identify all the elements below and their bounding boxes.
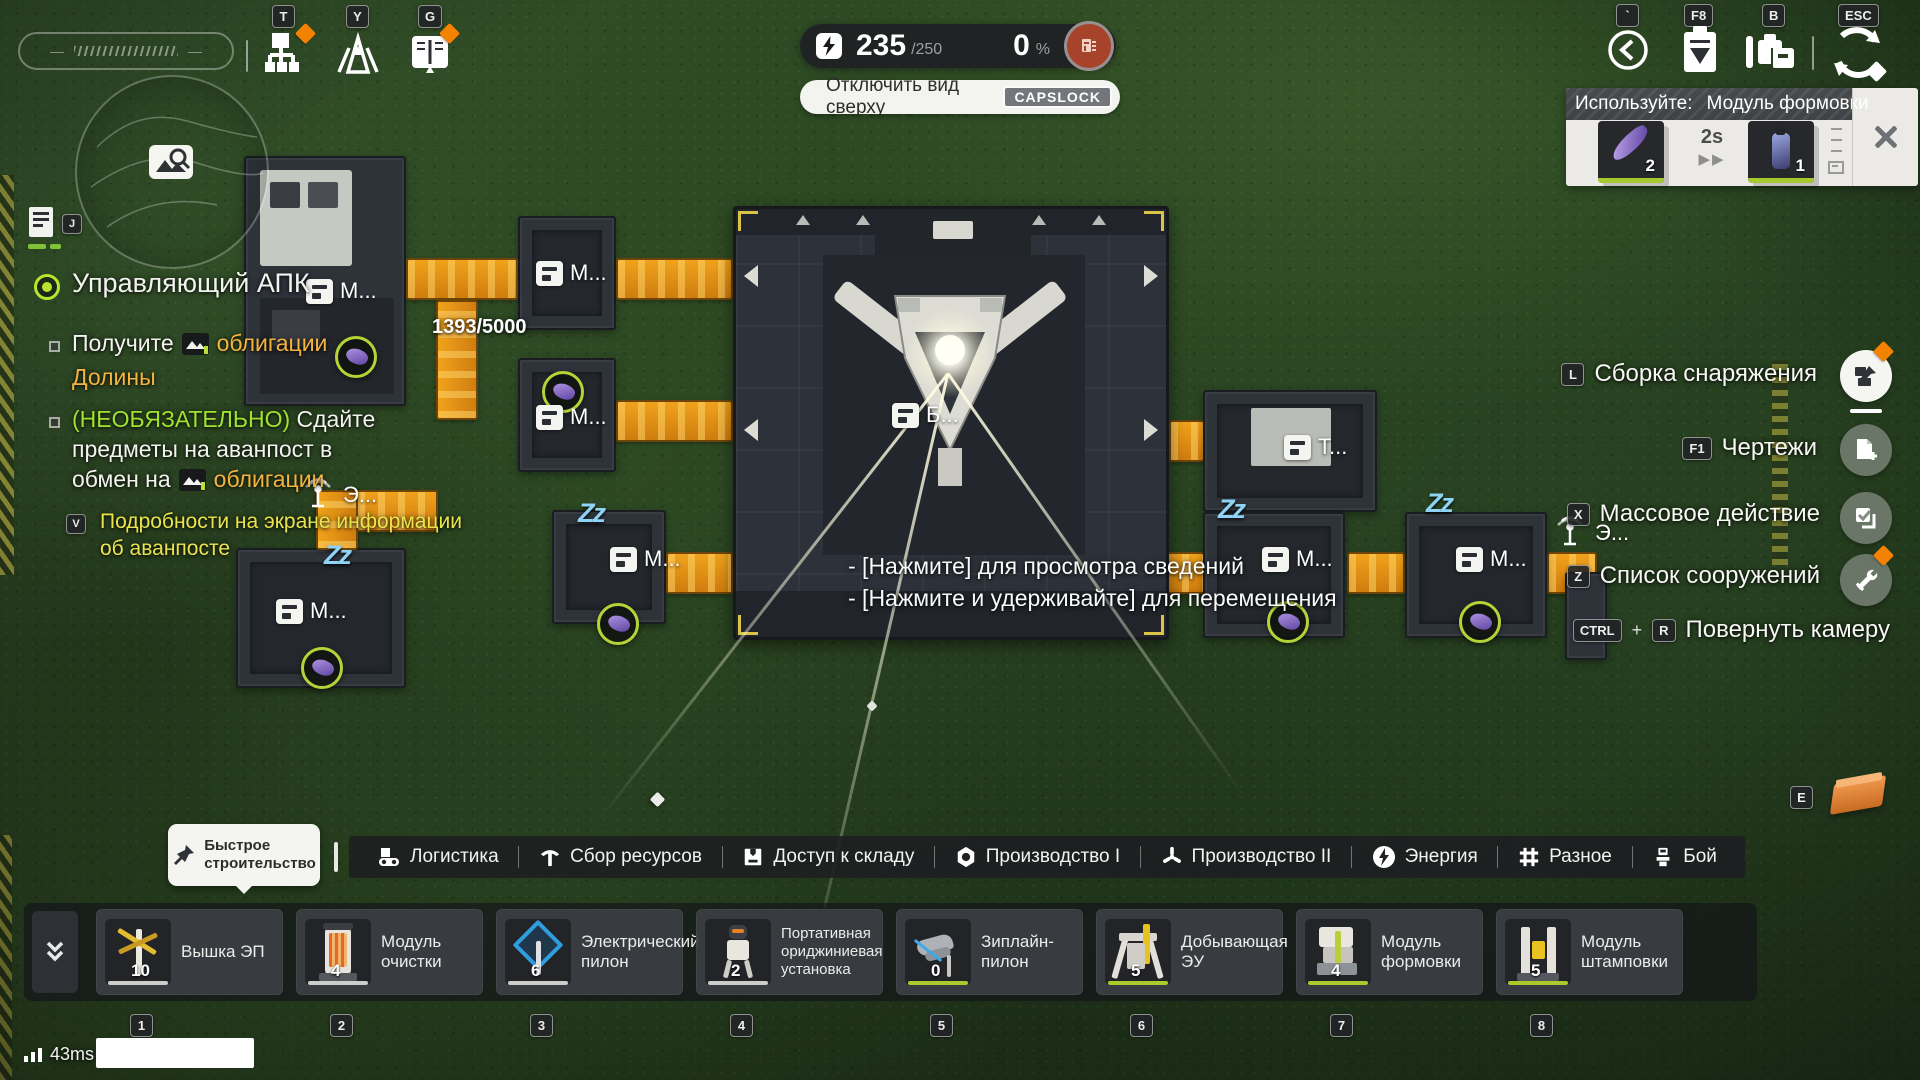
key-badge: Z — [1567, 565, 1590, 588]
item-icon-forming-module: 4 — [1305, 919, 1371, 985]
item-icon-pylon: 6 — [505, 919, 571, 985]
plus-sign: + — [1632, 620, 1643, 641]
scroll-indicator — [334, 842, 338, 872]
availability-bar — [308, 981, 368, 985]
item-icon-zipline-pylon: 0 — [905, 919, 971, 985]
storage-icon — [742, 846, 764, 868]
capslock-key-badge: CAPSLOCK — [1003, 86, 1112, 108]
tab-combat[interactable]: Бой — [1644, 846, 1725, 868]
bonds-item-icon — [179, 469, 206, 491]
quantity-stepper[interactable] — [1828, 128, 1844, 174]
availability-bar — [908, 981, 968, 985]
key-badge: B — [1762, 4, 1785, 27]
turret-icon — [1652, 846, 1674, 868]
key-badge: X — [1567, 503, 1590, 526]
blueprints-button[interactable] — [1840, 424, 1892, 476]
menu-label: Массовое действие — [1600, 500, 1820, 528]
tab-misc[interactable]: Разное — [1510, 846, 1620, 868]
key-badge: 4 — [730, 1014, 753, 1037]
menu-row-structure-list[interactable]: Z Список сооружений — [1567, 562, 1820, 590]
pin-icon — [172, 843, 196, 867]
key-badge: T — [272, 5, 295, 28]
blueprint-icon — [1853, 437, 1879, 463]
fan-icon — [1161, 846, 1183, 868]
mass-action-icon — [1853, 505, 1879, 531]
gear-assembly-icon — [1853, 363, 1879, 389]
menu-label: Сборка снаряжения — [1594, 360, 1817, 388]
objective-bullet — [49, 341, 60, 352]
tooltip-line2: - [Нажмите и удерживайте] для перемещени… — [848, 582, 1337, 614]
expedition-icon[interactable] — [336, 32, 380, 74]
tab-production-2[interactable]: Производство II — [1153, 846, 1340, 868]
key-badge: R — [1652, 619, 1675, 642]
key-badge: Y — [346, 5, 369, 28]
quest-hint-line1: Подробности на экране информации — [100, 510, 462, 534]
key-badge: F8 — [1684, 4, 1713, 27]
divider — [722, 846, 723, 868]
hotbar-collapse-button[interactable] — [32, 911, 78, 993]
quest-objective-2-line2: предметы на аванпост в — [72, 436, 332, 463]
key-badge: V — [66, 514, 86, 534]
menu-row-blueprints[interactable]: F1 Чертежи — [1682, 434, 1817, 462]
availability-bar — [1308, 981, 1368, 985]
minimap[interactable] — [75, 75, 269, 269]
pickaxe-icon — [539, 846, 561, 868]
key-badge: ` — [1616, 4, 1639, 27]
use-panel-header: Используйте: Модуль формовки — [1566, 88, 1852, 120]
divider — [1812, 36, 1814, 70]
active-indicator — [1850, 409, 1882, 413]
key-badge: 5 — [930, 1014, 953, 1037]
hotbar-slot-3[interactable]: 6 Электрический пилон — [496, 909, 683, 995]
hotbar-slot-8[interactable]: 5 Модуль штамповки — [1496, 909, 1683, 995]
power-bar: 235 /250 0 % — [800, 24, 1116, 68]
inventory-icon[interactable] — [1742, 28, 1798, 72]
top-view-label: Отключить вид сверху — [826, 75, 1003, 119]
quest-objective-2-line3: обмен на облигации — [72, 466, 324, 493]
compass-bar: — — — [18, 32, 234, 70]
menu-rotate-icon[interactable] — [1824, 22, 1890, 84]
menu-label: Повернуть камеру — [1686, 616, 1891, 644]
rarity-bar — [1748, 178, 1814, 183]
divider — [1497, 846, 1498, 868]
quick-build-button[interactable]: Быстрое строительство — [168, 824, 320, 886]
power-percent: 0 — [1013, 29, 1030, 63]
key-badge: J — [62, 214, 82, 234]
availability-bar — [708, 981, 768, 985]
nut-icon — [955, 846, 977, 868]
tracker-coords — [50, 244, 61, 249]
power-icon — [816, 33, 842, 59]
bonds-item-icon — [182, 333, 209, 355]
use-prefix: Используйте: — [1575, 93, 1693, 115]
tab-energy[interactable]: Энергия — [1364, 845, 1486, 869]
bonds-link: облигации — [217, 330, 328, 357]
tab-production-1[interactable]: Производство I — [947, 846, 1128, 868]
hotbar-slot-1[interactable]: 10 Вышка ЭП — [96, 909, 283, 995]
quest-title: Управляющий АПК — [72, 268, 310, 299]
tracker-coords — [28, 244, 46, 249]
signal-bars-icon — [24, 1046, 44, 1062]
menu-row-gear-assembly[interactable]: L Сборка снаряжения — [1561, 360, 1817, 388]
fast-forward-icon: ▶▶ — [1686, 150, 1738, 168]
key-badge: 3 — [530, 1014, 553, 1037]
held-item-ramp-icon[interactable] — [1828, 768, 1888, 820]
hotbar-slot-6[interactable]: 5 Добывающая ЭУ — [1096, 909, 1283, 995]
tab-resources[interactable]: Сбор ресурсов — [531, 846, 710, 868]
availability-bar — [1108, 981, 1168, 985]
ping-label: 43ms — [50, 1044, 94, 1065]
item-icon-stamping-module: 5 — [1505, 919, 1571, 985]
mass-action-button[interactable] — [1840, 492, 1892, 544]
bonds-link: облигации — [214, 466, 325, 493]
craft-duration: 2s — [1686, 126, 1738, 149]
conveyor-icon — [377, 845, 401, 869]
result-count: 1 — [1796, 156, 1805, 176]
game-screen: Zz Zz Zz Zz М... М... М... М... М... Б..… — [0, 0, 1920, 1080]
key-badge: 1 — [130, 1014, 153, 1037]
key-badge: 8 — [1530, 1014, 1553, 1037]
key-badge: G — [418, 5, 442, 28]
tooltip-line1: - [Нажмите] для просмотра сведений — [848, 550, 1337, 582]
hover-tooltip: - [Нажмите] для просмотра сведений - [На… — [848, 550, 1337, 614]
compass-ticks — [74, 46, 178, 56]
map-zoom-icon[interactable] — [148, 144, 194, 184]
factory-status-icon[interactable] — [1064, 21, 1114, 71]
key-badge: F1 — [1682, 437, 1711, 460]
ingredient-count: 2 — [1646, 156, 1655, 176]
tab-logistics[interactable]: Логистика — [369, 845, 507, 869]
power-percent-unit: % — [1036, 41, 1050, 59]
quest-marker-icon — [34, 274, 60, 300]
hotbar-slot-7[interactable]: 4 Модуль формовки — [1296, 909, 1483, 995]
use-item-panel: Используйте: Модуль формовки 2 2s ▶▶ 1 — [1566, 88, 1918, 186]
power-max: /250 — [911, 41, 942, 59]
rarity-bar — [1598, 178, 1664, 183]
objective-bullet — [49, 417, 60, 428]
divider — [246, 40, 248, 72]
item-icon-mining-unit: 5 — [1105, 919, 1171, 985]
factory-glyph — [1078, 35, 1100, 57]
white-box — [96, 1038, 254, 1068]
tab-storage[interactable]: Доступ к складу — [734, 846, 922, 868]
key-badge: L — [1561, 363, 1584, 386]
hotbar-slot-2[interactable]: 4 Модуль очистки — [296, 909, 483, 995]
power-value: 235 — [856, 29, 906, 63]
energy-icon — [1372, 845, 1396, 869]
wrench-icon — [1853, 567, 1879, 593]
key-badge: 6 — [1130, 1014, 1153, 1037]
menu-row-mass-action[interactable]: X Массовое действие — [1567, 500, 1820, 528]
item-icon-power-tower: 10 — [105, 919, 171, 985]
hash-icon — [1518, 846, 1540, 868]
expand-button[interactable] — [1853, 88, 1918, 186]
top-view-toggle[interactable]: Отключить вид сверху CAPSLOCK — [800, 80, 1120, 114]
quest-hint-line2: об аванпосте — [100, 537, 230, 561]
item-icon-purifier: 4 — [305, 919, 371, 985]
result-card[interactable]: 1 — [1748, 121, 1814, 183]
divider — [1140, 846, 1141, 868]
build-category-tabbar: Логистика Сбор ресурсов Доступ к складу … — [349, 836, 1745, 878]
quest-objective-2: (НЕОБЯЗАТЕЛЬНО) Сдайте — [72, 406, 375, 433]
quest-objective-1-line2: Долины — [72, 364, 156, 391]
key-badge: CTRL — [1573, 619, 1622, 642]
tasks-clipboard-icon[interactable] — [1682, 26, 1718, 74]
key-badge: 2 — [330, 1014, 353, 1037]
divider — [518, 846, 519, 868]
divider — [1351, 846, 1352, 868]
key-badge: 7 — [1330, 1014, 1353, 1037]
availability-bar — [1508, 981, 1568, 985]
menu-label: Список сооружений — [1600, 562, 1820, 590]
use-item-name: Модуль формовки — [1707, 93, 1869, 115]
menu-row-rotate-camera[interactable]: CTRL + R Повернуть камеру — [1573, 616, 1890, 644]
divider — [1632, 846, 1633, 868]
hotbar-slot-5[interactable]: 0 Зиплайн-пилон — [896, 909, 1083, 995]
back-icon[interactable] — [1606, 28, 1650, 72]
hotbar-slot-4[interactable]: 2 Портативная ориджиниевая установка — [696, 909, 883, 995]
item-icon-originium-rig: 2 — [705, 919, 771, 985]
quick-build-label: Быстрое строительство — [204, 837, 316, 873]
ingredient-card[interactable]: 2 — [1598, 121, 1664, 183]
menu-label: Чертежи — [1722, 434, 1817, 462]
quest-objective-1: Получите облигации — [72, 330, 327, 357]
key-badge: E — [1790, 786, 1813, 809]
tracker-icon[interactable] — [28, 206, 54, 238]
availability-bar — [508, 981, 568, 985]
divider — [934, 846, 935, 868]
availability-bar — [108, 981, 168, 985]
chevron-down-icon — [43, 939, 67, 965]
